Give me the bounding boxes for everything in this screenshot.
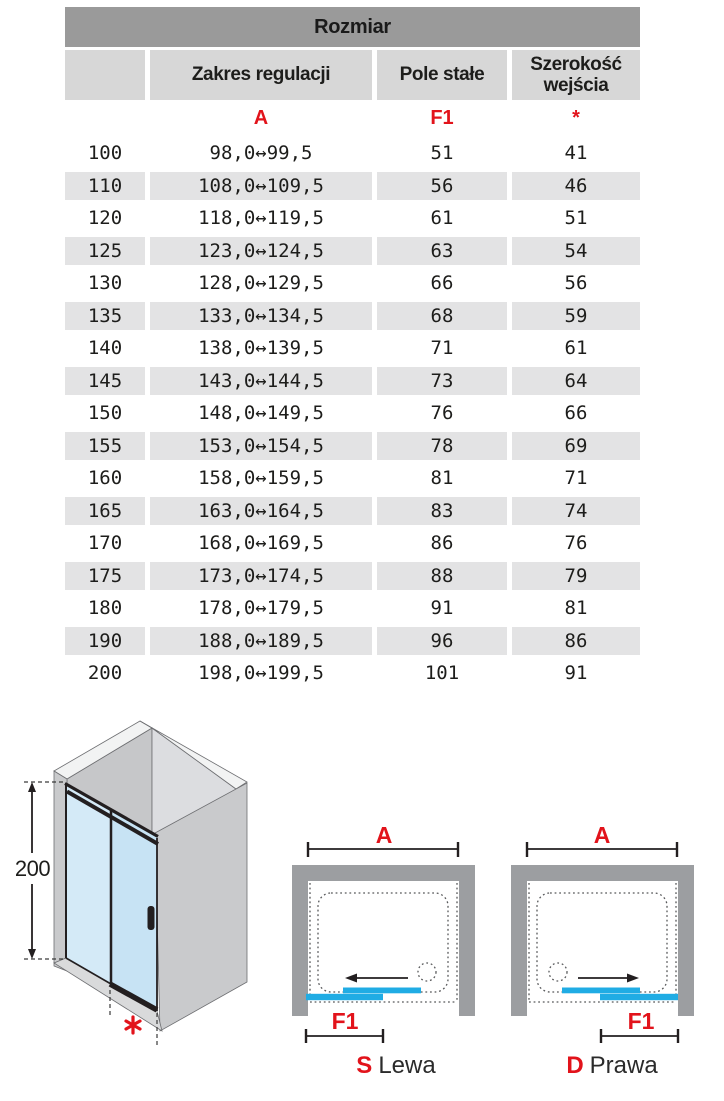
range-cell: 143,0↔144,5	[150, 365, 372, 398]
entry-cell: 64	[512, 365, 640, 398]
table-row: 165 163,0↔164,5 83 74	[65, 495, 640, 528]
size-cell: 150	[65, 397, 145, 430]
fixed-cell: 63	[377, 235, 507, 268]
symbol-a: A	[150, 100, 372, 137]
table-row: 140 138,0↔139,5 71 61	[65, 332, 640, 365]
table-row: 145 143,0↔144,5 73 64	[65, 365, 640, 398]
entry-cell: 66	[512, 397, 640, 430]
entry-cell: 46	[512, 170, 640, 203]
wall-top	[292, 865, 475, 881]
wall-left	[292, 865, 308, 1016]
fixed-cell: 66	[377, 267, 507, 300]
sliding-panel-bar	[343, 988, 421, 994]
column-header-fixed: Pole stałe	[377, 50, 507, 100]
entry-cell: 76	[512, 527, 640, 560]
entry-cell: 61	[512, 332, 640, 365]
table-row: 125 123,0↔124,5 63 54	[65, 235, 640, 268]
drain-icon	[549, 963, 567, 981]
fixed-cell: 81	[377, 462, 507, 495]
catalog-page: Rozmiar Zakres regulacji Pole stałe Szer…	[0, 0, 724, 1101]
fixed-cell: 101	[377, 657, 507, 690]
size-cell: 140	[65, 332, 145, 365]
sliding-panel-bar	[562, 988, 640, 994]
size-cell: 165	[65, 495, 145, 528]
height-value: 200	[15, 856, 50, 881]
size-cell: 120	[65, 202, 145, 235]
table-row: 130 128,0↔129,5 66 56	[65, 267, 640, 300]
range-cell: 138,0↔139,5	[150, 332, 372, 365]
entry-cell: 74	[512, 495, 640, 528]
range-cell: 158,0↔159,5	[150, 462, 372, 495]
entry-cell: 79	[512, 560, 640, 593]
table-row: 180 178,0↔179,5 91 81	[65, 592, 640, 625]
range-cell: 173,0↔174,5	[150, 560, 372, 593]
wall-right	[459, 865, 475, 1016]
table-row: 155 153,0↔154,5 78 69	[65, 430, 640, 463]
entry-cell: 81	[512, 592, 640, 625]
f1-label: F1	[332, 1008, 359, 1034]
range-cell: 118,0↔119,5	[150, 202, 372, 235]
size-cell: 200	[65, 657, 145, 690]
range-cell: 148,0↔149,5	[150, 397, 372, 430]
size-cell: 170	[65, 527, 145, 560]
fixed-cell: 73	[377, 365, 507, 398]
arrow-right-icon	[627, 974, 639, 983]
entry-cell: 69	[512, 430, 640, 463]
table-title: Rozmiar	[65, 7, 640, 47]
table-row: 190 188,0↔189,5 96 86	[65, 625, 640, 658]
table-row: 200 198,0↔199,5 101 91	[65, 657, 640, 690]
width-label-a: A	[594, 822, 611, 848]
fixed-panel-bar	[600, 994, 678, 1000]
asterisk-icon	[126, 1017, 140, 1033]
range-cell: 168,0↔169,5	[150, 527, 372, 560]
wall-top	[511, 865, 694, 881]
entry-cell: 41	[512, 137, 640, 170]
drain-icon	[418, 963, 436, 981]
entry-cell: 51	[512, 202, 640, 235]
symbol-blank	[65, 100, 145, 137]
wall-right	[678, 865, 694, 1016]
range-cell: 153,0↔154,5	[150, 430, 372, 463]
size-cell: 155	[65, 430, 145, 463]
table-symbol-row: A F1 *	[65, 100, 640, 137]
table-row: 110 108,0↔109,5 56 46	[65, 170, 640, 203]
fixed-cell: 88	[377, 560, 507, 593]
range-cell: 108,0↔109,5	[150, 170, 372, 203]
range-cell: 163,0↔164,5	[150, 495, 372, 528]
entry-cell: 54	[512, 235, 640, 268]
plan-right-version: A F1 DPrawa	[511, 822, 694, 1079]
table-row: 160 158,0↔159,5 81 71	[65, 462, 640, 495]
fixed-cell: 56	[377, 170, 507, 203]
size-cell: 180	[65, 592, 145, 625]
entry-cell: 59	[512, 300, 640, 333]
range-cell: 128,0↔129,5	[150, 267, 372, 300]
width-label-a: A	[376, 822, 393, 848]
size-cell: 160	[65, 462, 145, 495]
size-cell: 175	[65, 560, 145, 593]
table-row: 170 168,0↔169,5 86 76	[65, 527, 640, 560]
size-table: Rozmiar Zakres regulacji Pole stałe Szer…	[65, 7, 640, 690]
arrow-down-icon	[28, 949, 36, 959]
isometric-enclosure-drawing: 200	[15, 721, 247, 1045]
table-body: 100 98,0↔99,5 51 41 110 108,0↔109,5 56 4…	[65, 137, 640, 690]
fixed-cell: 86	[377, 527, 507, 560]
table-row: 120 118,0↔119,5 61 51	[65, 202, 640, 235]
fixed-cell: 76	[377, 397, 507, 430]
entry-cell: 56	[512, 267, 640, 300]
arrow-left-icon	[345, 974, 357, 983]
range-cell: 123,0↔124,5	[150, 235, 372, 268]
entry-cell: 91	[512, 657, 640, 690]
fixed-cell: 71	[377, 332, 507, 365]
fixed-cell: 61	[377, 202, 507, 235]
range-cell: 133,0↔134,5	[150, 300, 372, 333]
table-row: 175 173,0↔174,5 88 79	[65, 560, 640, 593]
size-cell: 125	[65, 235, 145, 268]
column-header-entry: Szerokość wejścia	[512, 50, 640, 100]
plan-left-version: A F1 SLewa	[292, 822, 475, 1079]
fixed-cell: 91	[377, 592, 507, 625]
fixed-cell: 83	[377, 495, 507, 528]
variant-label-right: DPrawa	[566, 1052, 658, 1079]
range-cell: 178,0↔179,5	[150, 592, 372, 625]
fixed-cell: 78	[377, 430, 507, 463]
fixed-cell: 96	[377, 625, 507, 658]
size-cell: 130	[65, 267, 145, 300]
range-cell: 198,0↔199,5	[150, 657, 372, 690]
variant-label-left: SLewa	[356, 1052, 436, 1079]
entry-cell: 86	[512, 625, 640, 658]
technical-diagrams: 200 A F1 SLewa	[0, 700, 724, 1101]
f1-label: F1	[628, 1008, 655, 1034]
size-cell: 135	[65, 300, 145, 333]
fixed-panel-bar	[306, 994, 383, 1000]
table-column-headers: Zakres regulacji Pole stałe Szerokość we…	[65, 50, 640, 100]
table-row: 100 98,0↔99,5 51 41	[65, 137, 640, 170]
wall-left	[511, 865, 527, 1016]
column-header-range: Zakres regulacji	[150, 50, 372, 100]
size-cell: 190	[65, 625, 145, 658]
fixed-cell: 68	[377, 300, 507, 333]
range-cell: 188,0↔189,5	[150, 625, 372, 658]
size-cell: 145	[65, 365, 145, 398]
entry-cell: 71	[512, 462, 640, 495]
size-cell: 110	[65, 170, 145, 203]
symbol-f1: F1	[377, 100, 507, 137]
fixed-cell: 51	[377, 137, 507, 170]
symbol-asterisk: *	[512, 100, 640, 137]
size-cell: 100	[65, 137, 145, 170]
arrow-up-icon	[28, 782, 36, 792]
door-handle-icon	[148, 906, 155, 930]
table-row: 135 133,0↔134,5 68 59	[65, 300, 640, 333]
column-header-size	[65, 50, 145, 100]
table-row: 150 148,0↔149,5 76 66	[65, 397, 640, 430]
range-cell: 98,0↔99,5	[150, 137, 372, 170]
